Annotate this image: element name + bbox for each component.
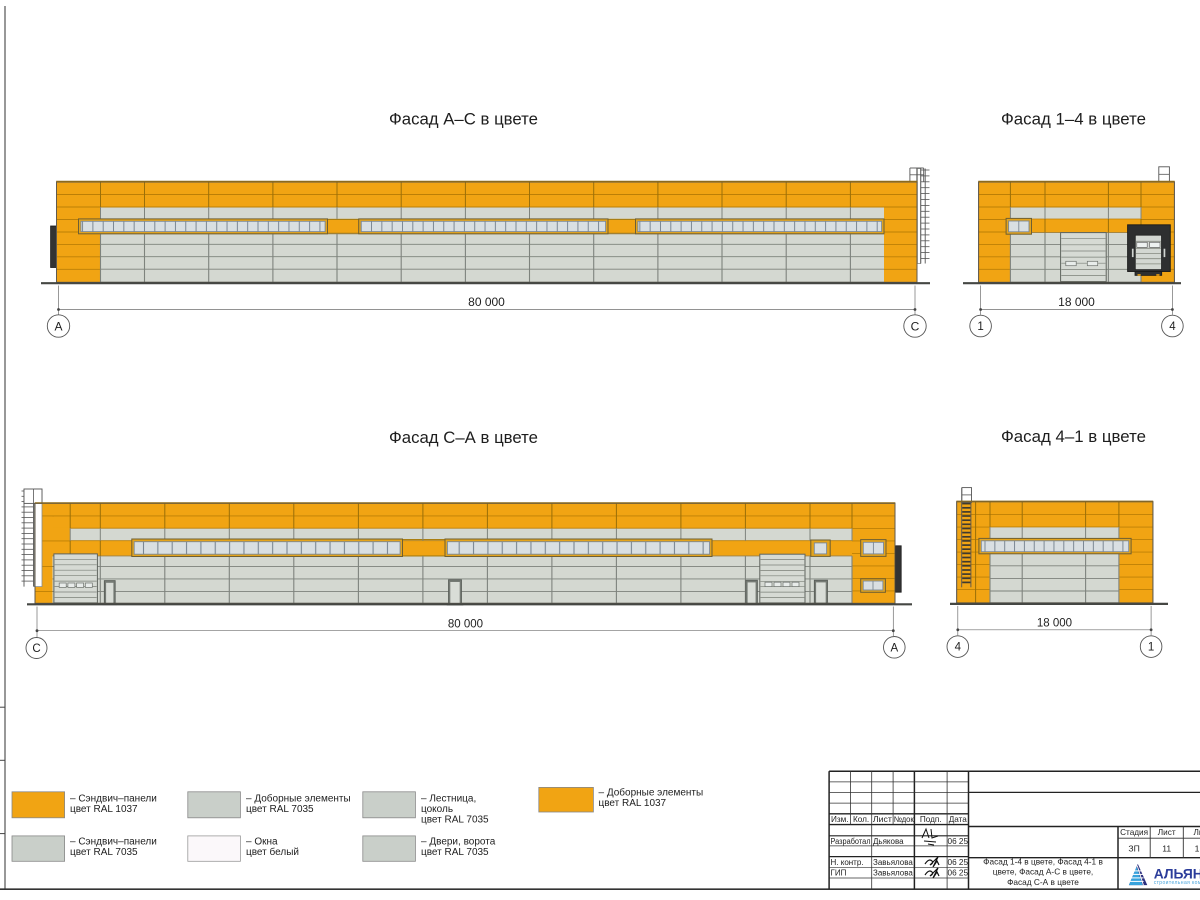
svg-text:– Доборные элементы: – Доборные элементы: [599, 787, 704, 799]
svg-text:06 25: 06 25: [948, 858, 969, 867]
svg-text:цвет RAL 7035: цвет RAL 7035: [70, 847, 138, 858]
svg-text:цвет RAL 1037: цвет RAL 1037: [599, 798, 667, 809]
svg-text:– Сэндвич–панели: – Сэндвич–панели: [70, 794, 157, 805]
svg-text:Разработал: Разработал: [831, 837, 871, 846]
svg-text:Фасад С–А в цвете: Фасад С–А в цвете: [389, 428, 538, 447]
svg-text:Дата: Дата: [949, 815, 968, 824]
svg-text:Завьялова: Завьялова: [873, 858, 913, 867]
svg-text:Фасад 1–4 в цвете: Фасад 1–4 в цвете: [1001, 110, 1146, 129]
svg-text:Подп.: Подп.: [920, 815, 942, 824]
svg-text:Дьякова: Дьякова: [873, 837, 904, 846]
svg-text:цвете, Фасад А-С в цвете,: цвете, Фасад А-С в цвете,: [993, 867, 1094, 877]
svg-text:Лис: Лис: [1194, 828, 1200, 837]
svg-text:18 000: 18 000: [1058, 295, 1095, 309]
svg-text:цвет белый: цвет белый: [246, 846, 299, 858]
svg-text:06 25: 06 25: [948, 869, 969, 878]
svg-text:Лист: Лист: [873, 815, 892, 824]
svg-text:Фасад С-А в цвете: Фасад С-А в цвете: [1007, 877, 1079, 887]
svg-text:№док: №док: [894, 815, 914, 824]
svg-text:Завьялова: Завьялова: [873, 869, 913, 878]
svg-text:А: А: [890, 642, 898, 654]
svg-text:цвет RAL 7035: цвет RAL 7035: [421, 847, 489, 858]
svg-text:С: С: [911, 319, 920, 333]
svg-text:ЗП: ЗП: [1128, 844, 1139, 854]
svg-text:Фасад А–С в цвете: Фасад А–С в цвете: [389, 110, 538, 129]
svg-text:Фасад 1-4 в цвете, Фасад 4-1 в: Фасад 1-4 в цвете, Фасад 4-1 в: [983, 857, 1103, 867]
svg-text:А: А: [54, 319, 62, 333]
svg-text:ГИП: ГИП: [831, 869, 847, 878]
svg-text:строительная компания: строительная компания: [1154, 880, 1200, 886]
svg-text:1: 1: [1148, 642, 1154, 654]
svg-text:– Доборные элементы: – Доборные элементы: [246, 793, 351, 805]
svg-text:– Сэндвич–панели: – Сэндвич–панели: [70, 837, 157, 848]
svg-text:11: 11: [1162, 844, 1171, 854]
svg-text:Изм.: Изм.: [831, 815, 849, 824]
svg-text:4: 4: [955, 642, 962, 654]
svg-text:80 000: 80 000: [468, 295, 505, 309]
svg-text:4: 4: [1169, 321, 1176, 333]
svg-text:Стадия: Стадия: [1120, 828, 1148, 837]
svg-text:цоколь: цоколь: [421, 804, 453, 815]
svg-text:цвет RAL 7035: цвет RAL 7035: [421, 815, 489, 826]
svg-text:Н. контр.: Н. контр.: [831, 858, 864, 867]
svg-text:цвет RAL 7035: цвет RAL 7035: [246, 804, 314, 815]
svg-text:Фасад 4–1 в цвете: Фасад 4–1 в цвете: [1001, 427, 1146, 446]
svg-text:18 000: 18 000: [1037, 618, 1072, 630]
svg-text:– Окна: – Окна: [246, 837, 278, 848]
svg-text:Кол.: Кол.: [853, 815, 869, 824]
svg-text:– Лестница,: – Лестница,: [421, 794, 476, 805]
svg-text:1: 1: [977, 321, 983, 333]
svg-text:С: С: [32, 643, 40, 655]
svg-text:80 000: 80 000: [448, 619, 483, 631]
svg-text:цвет RAL 1037: цвет RAL 1037: [70, 804, 138, 815]
svg-text:1: 1: [1195, 844, 1200, 854]
svg-text:06 25: 06 25: [948, 837, 969, 846]
svg-text:Лист: Лист: [1158, 828, 1176, 837]
svg-text:– Двери, ворота: – Двери, ворота: [421, 837, 496, 848]
